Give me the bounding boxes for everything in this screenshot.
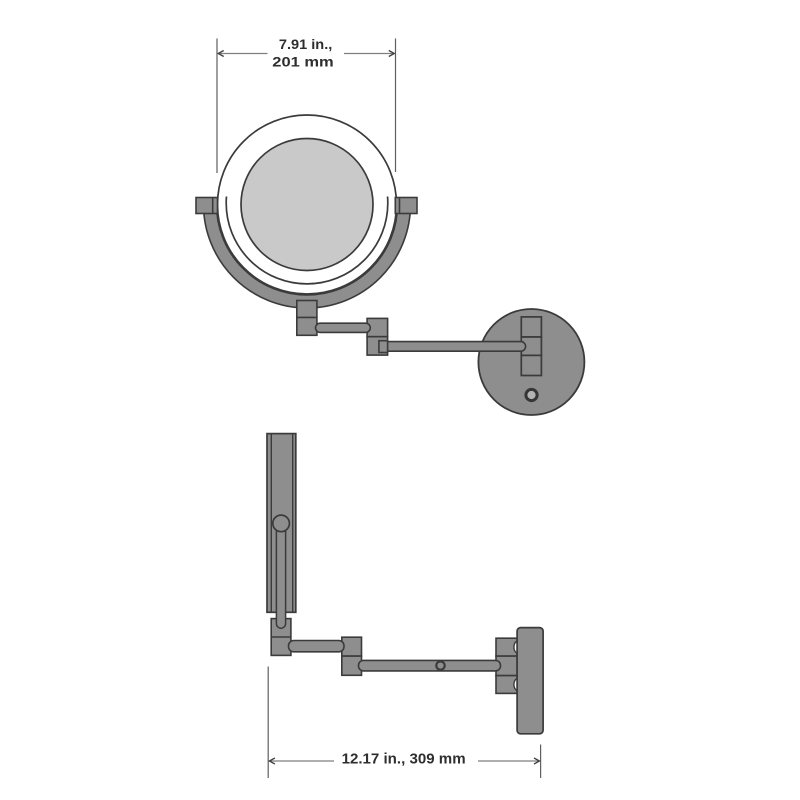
- svg-text:7.91 in.,: 7.91 in.,: [279, 37, 332, 53]
- svg-text:12.17 in., 309 mm: 12.17 in., 309 mm: [342, 751, 466, 767]
- svg-text:201 mm: 201 mm: [272, 54, 333, 70]
